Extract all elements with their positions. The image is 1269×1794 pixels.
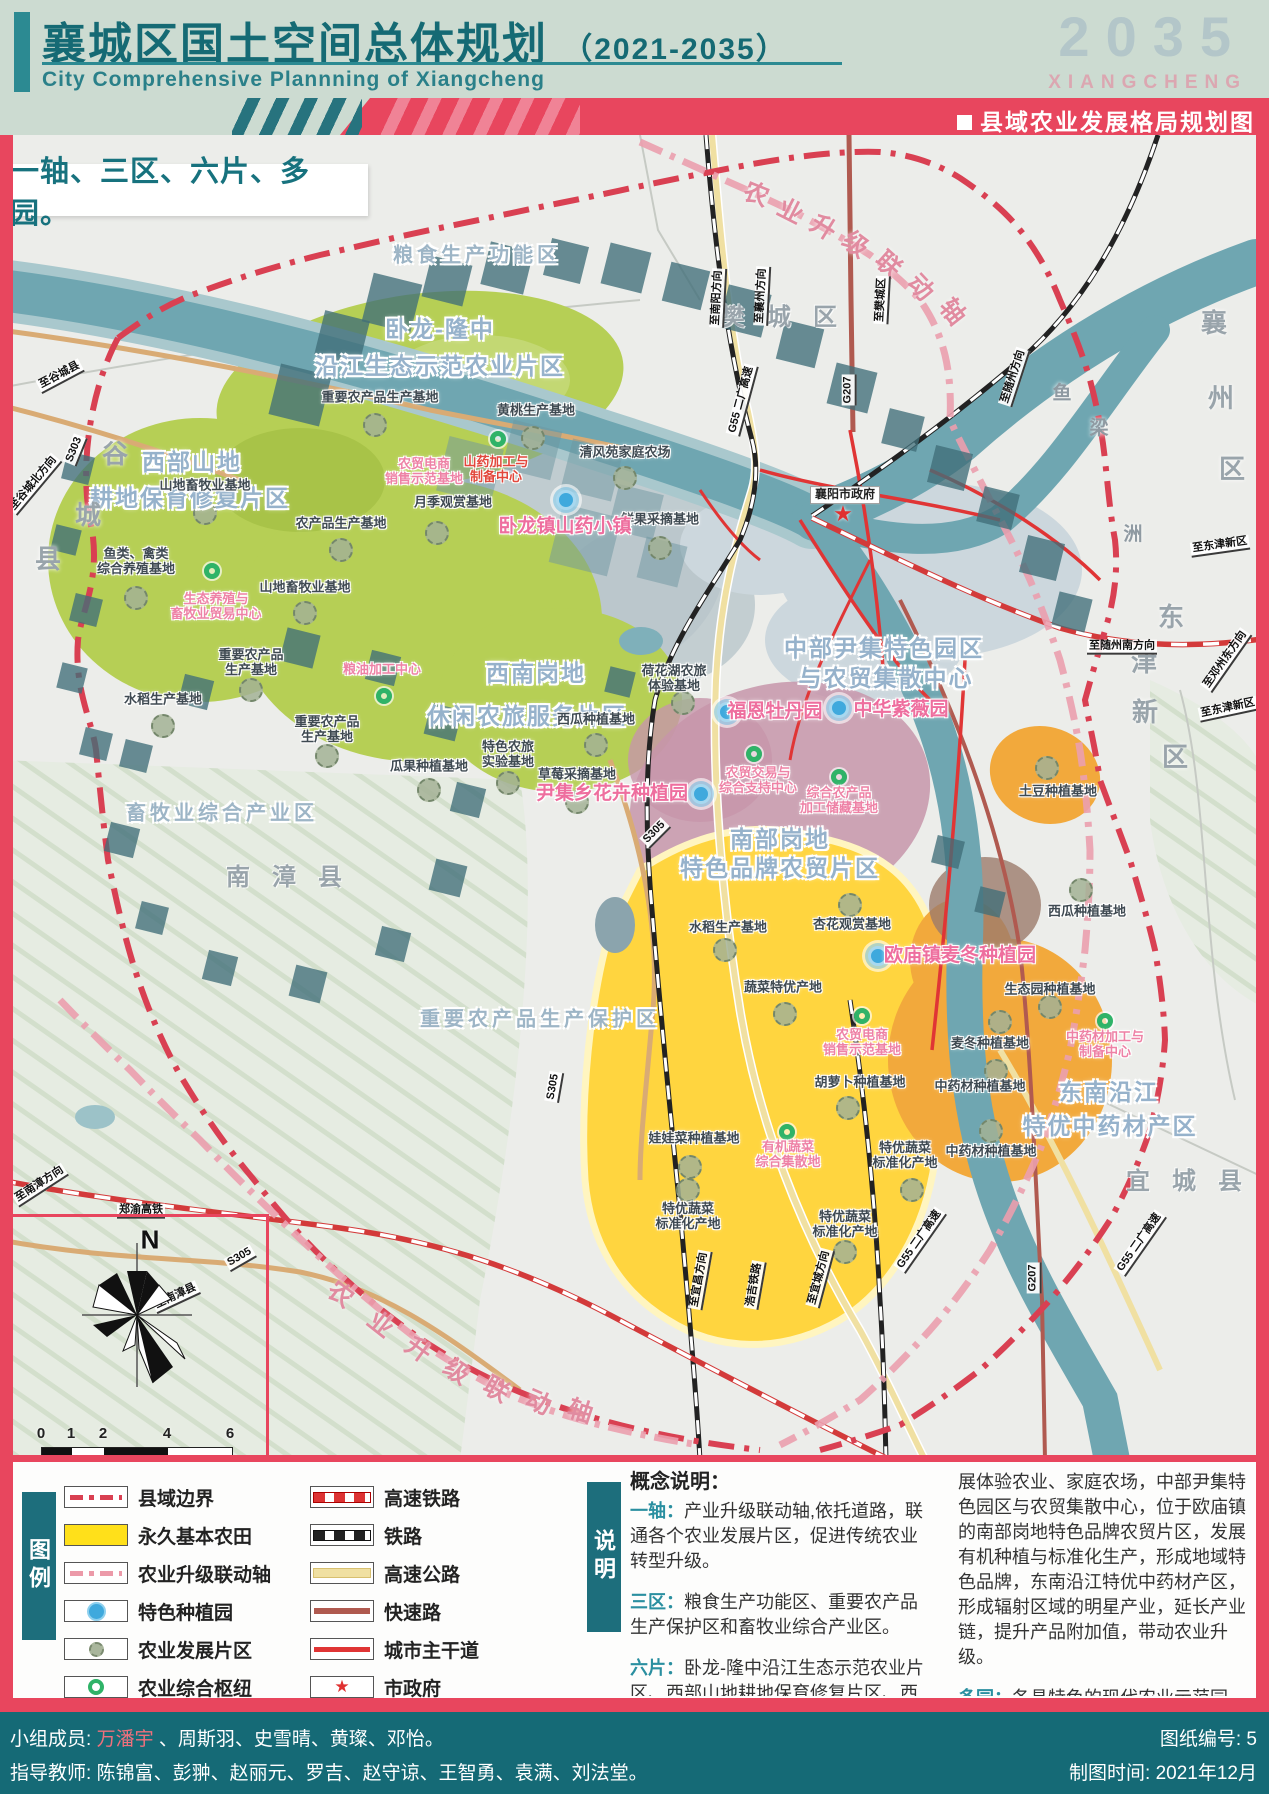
county-boundary-swatch-icon (64, 1486, 128, 1508)
page-title-english: City Comprehensive Plannning of Xiangche… (42, 68, 545, 92)
header-year: 2035 (1058, 4, 1247, 69)
slogan-box: 一轴、三区、六片、多园。 (10, 164, 368, 216)
frame-right (1256, 135, 1269, 1710)
footer-members: 小组成员: 万潘宇 、周斯羽、史雪晴、黄璨、邓怡。 (10, 1724, 444, 1751)
banner-red-ribbon: 县域农业发展格局规划图 (370, 98, 1269, 135)
frame-left (0, 135, 13, 1710)
footer: 小组成员: 万潘宇 、周斯羽、史雪晴、黄璨、邓怡。 指导教师: 陈锦富、彭翀、赵… (0, 1712, 1269, 1794)
railway-swatch-icon (310, 1524, 374, 1546)
agri-hub-swatch-icon (64, 1676, 128, 1698)
agri-zone-swatch-icon (64, 1638, 128, 1660)
legend-item-main-road: 城市主干道 (310, 1636, 479, 1662)
notes-continuation: 展体验农业、家庭农场，中部尹集特色园区与农贸集散中心，位于欧庙镇的南部岗地特色品… (958, 1470, 1250, 1670)
legend-item-agri-hub: 农业综合枢纽 (64, 1674, 252, 1700)
legend-item-hsr: 高速铁路 (310, 1484, 460, 1510)
footer-member-highlight: 万潘宇 (97, 1729, 154, 1750)
notes-item-parks: 多园：各具特色的现代农业示范园区、特色农作物集中生产地。 (958, 1686, 1250, 1696)
legend-item-basic-farmland: 永久基本农田 (64, 1522, 252, 1548)
government-star-icon: ★ (310, 1676, 374, 1698)
legend-item-railway: 铁路 (310, 1522, 422, 1548)
map-legend-divider (13, 1455, 1256, 1462)
banner: 县域农业发展格局规划图 (0, 98, 1269, 135)
legend-item-upgrade-axis: 农业升级联动轴 (64, 1560, 271, 1586)
scale-tick-label: 1 (67, 1425, 75, 1442)
square-bullet-icon (957, 115, 972, 130)
farmland-swatch-icon (64, 1524, 128, 1546)
scale-tick-label: 6 (226, 1425, 234, 1442)
notes-item-axis: 一轴：产业升级联动轴,依托道路，联通各个农业发展片区，促进传统农业转型升级。 (630, 1499, 930, 1574)
notes-item-pieces: 六片：卧龙-隆中沿江生态示范农业片区、西部山地耕地保育修复片区、西南岗地休闲农旅… (630, 1656, 930, 1696)
header-accent-bar (14, 12, 30, 92)
notes-column-2: 展体验农业、家庭农场，中部尹集特色园区与农贸集散中心，位于欧庙镇的南部岗地特色品… (958, 1470, 1250, 1696)
notes-tab: 说明 (587, 1482, 621, 1632)
legend-item-expressway: 高速公路 (310, 1560, 460, 1586)
scale-tick-label: 0 (37, 1425, 45, 1442)
quick-road-swatch-icon (310, 1600, 374, 1622)
legend-item-county-boundary: 县域边界 (64, 1484, 214, 1510)
hsr-swatch-icon (310, 1486, 374, 1508)
legend-item-agri-zone: 农业发展片区 (64, 1636, 252, 1662)
legend-item-government: ★ 市政府 (310, 1674, 441, 1700)
footer-teachers: 指导教师: 陈锦富、彭翀、赵丽元、罗吉、赵守谅、王智勇、袁满、刘法堂。 (10, 1758, 648, 1785)
notes-heading: 概念说明： (630, 1470, 930, 1495)
notes-column-1: 概念说明： 一轴：产业升级联动轴,依托道路，联通各个农业发展片区，促进传统农业转… (630, 1470, 930, 1696)
header: 襄城区国土空间总体规划 （2021-2035） City Comprehensi… (0, 0, 1269, 98)
header-city-english: XIANGCHENG (1048, 72, 1247, 94)
main-road-swatch-icon (310, 1638, 374, 1660)
planting-park-swatch-icon (64, 1600, 128, 1622)
frame-bottom (0, 1698, 1269, 1712)
header-underline (42, 62, 842, 65)
footer-date: 制图时间: 2021年12月 (1069, 1758, 1257, 1785)
slogan-text: 一轴、三区、六片、多园。 (10, 148, 368, 232)
notes-item-zones: 三区：粮食生产功能区、重要农产品生产保护区和畜牧业综合产业区。 (630, 1590, 930, 1640)
scale-tick-label: 2 (99, 1425, 107, 1442)
compass-rose-icon (77, 1240, 197, 1390)
legend-item-quick-road: 快速路 (310, 1598, 441, 1624)
banner-stripes-pink (380, 98, 580, 135)
scale-tick-label: 4 (163, 1425, 171, 1442)
legend-tab: 图例 (22, 1492, 56, 1640)
footer-sheet-number: 图纸编号: 5 (1160, 1724, 1257, 1751)
map-sheet-title: 县域农业发展格局规划图 (957, 103, 1255, 137)
legend-item-planting-park: 特色种植园 (64, 1598, 233, 1624)
upgrade-axis-swatch-icon (64, 1562, 128, 1584)
expressway-swatch-icon (310, 1562, 374, 1584)
planning-poster: 襄城区国土空间总体规划 （2021-2035） City Comprehensi… (0, 0, 1269, 1794)
banner-stripes-teal (232, 98, 362, 135)
